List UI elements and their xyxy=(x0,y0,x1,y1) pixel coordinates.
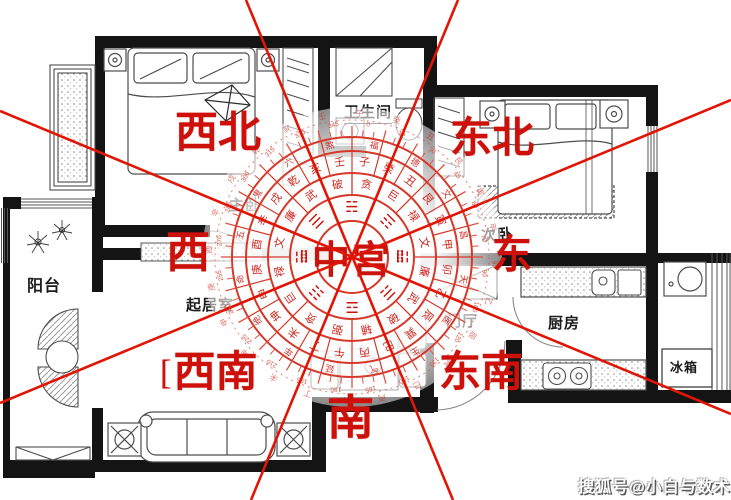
svg-text:庚: 庚 xyxy=(206,282,217,292)
sector-line-wnw-ese xyxy=(0,111,731,414)
svg-text:乙: 乙 xyxy=(483,296,494,306)
svg-text:甲: 甲 xyxy=(440,238,453,250)
svg-text:30: 30 xyxy=(427,146,437,156)
label-entry-hall: 门厅 xyxy=(446,310,478,331)
svg-text:丁: 丁 xyxy=(308,337,323,352)
svg-text:丑: 丑 xyxy=(402,173,418,189)
svg-text:巳: 巳 xyxy=(381,337,396,352)
svg-text:☳: ☳ xyxy=(393,250,410,263)
plants xyxy=(27,220,72,253)
svg-text:气: 气 xyxy=(369,363,380,376)
label-kitchen: 厨房 xyxy=(548,312,580,333)
svg-text:乾: 乾 xyxy=(285,173,302,190)
svg-text:延: 延 xyxy=(324,363,335,376)
svg-text:120: 120 xyxy=(452,330,464,343)
svg-text:乙: 乙 xyxy=(432,286,448,301)
svg-text:德: 德 xyxy=(409,155,423,169)
svg-text:300: 300 xyxy=(240,170,252,183)
svg-text:丙: 丙 xyxy=(377,392,387,402)
svg-text:破: 破 xyxy=(331,176,345,192)
svg-text:文: 文 xyxy=(417,236,433,250)
svg-text:破: 破 xyxy=(385,310,402,328)
svg-text:禄: 禄 xyxy=(405,207,423,224)
label-balcony: 阳台 xyxy=(27,272,61,296)
svg-text:辰: 辰 xyxy=(419,307,435,323)
svg-text:戌: 戌 xyxy=(268,190,285,207)
svg-text:禄: 禄 xyxy=(271,265,287,279)
svg-text:癸: 癸 xyxy=(381,160,397,177)
svg-text:巨: 巨 xyxy=(283,290,299,306)
svg-text:45: 45 xyxy=(452,170,462,180)
fengshui-floorplan: 主卧 卫生间 次卧 阳台 起居室 门厅 厨房 冰箱 ☵☶☳☴☲☷☱☰贪巨禄文廉武… xyxy=(0,0,731,500)
watermark: 搜狐号@小白与数术 xyxy=(578,473,731,497)
svg-text:煞: 煞 xyxy=(324,139,335,152)
svg-text:巨: 巨 xyxy=(385,188,401,204)
svg-text:270: 270 xyxy=(217,235,224,246)
svg-text:命: 命 xyxy=(234,274,247,285)
svg-text:坤: 坤 xyxy=(267,307,285,324)
svg-text:210: 210 xyxy=(265,357,278,369)
svg-text:辅: 辅 xyxy=(360,322,374,338)
svg-text:225: 225 xyxy=(241,332,254,345)
svg-text:武: 武 xyxy=(303,187,319,204)
svg-text:庚: 庚 xyxy=(249,263,264,276)
svg-text:寅: 寅 xyxy=(432,212,449,228)
label-east: 东 xyxy=(492,235,532,275)
svg-text:☲: ☲ xyxy=(345,298,358,315)
bracket-mark: [ xyxy=(160,354,171,392)
svg-text:未: 未 xyxy=(285,324,302,341)
seal-mark-icon: ⣿ xyxy=(395,248,405,264)
svg-text:亥: 亥 xyxy=(281,123,293,136)
label-southwest: [西南 xyxy=(160,352,257,394)
svg-text:90: 90 xyxy=(480,270,487,278)
svg-text:生: 生 xyxy=(409,345,423,359)
label-west: 西 xyxy=(166,231,210,275)
svg-text:申: 申 xyxy=(218,316,231,328)
svg-text:天: 天 xyxy=(458,274,470,285)
svg-text:未: 未 xyxy=(268,371,280,384)
label-living-room: 起居室 xyxy=(186,294,234,315)
svg-text:丙: 丙 xyxy=(358,345,370,358)
svg-text:午: 午 xyxy=(333,345,346,359)
svg-text:255: 255 xyxy=(216,269,226,282)
center-palace-text: 中宫 xyxy=(312,229,392,284)
label-master-bedroom: 主卧 xyxy=(229,194,261,215)
label-northeast: 东北 xyxy=(450,118,534,160)
svg-text:昌: 昌 xyxy=(458,229,470,240)
svg-text:癸: 癸 xyxy=(391,114,402,126)
label-fridge: 冰箱 xyxy=(670,357,698,376)
seal-mark-icon: ⣿ xyxy=(299,248,309,264)
svg-text:☵: ☵ xyxy=(345,199,358,216)
windows xyxy=(2,126,731,390)
svg-text:☶: ☶ xyxy=(376,211,398,233)
dining-set xyxy=(311,300,426,390)
svg-text:15: 15 xyxy=(397,130,406,139)
bedside-speakers xyxy=(104,49,279,71)
svg-text:六: 六 xyxy=(282,155,296,169)
svg-text:五: 五 xyxy=(235,229,247,240)
svg-text:☷: ☷ xyxy=(306,281,328,303)
svg-text:贪: 贪 xyxy=(360,176,374,192)
svg-text:165: 165 xyxy=(364,384,377,394)
svg-text:年: 年 xyxy=(282,345,296,359)
label-northwest: 西北 xyxy=(175,112,261,155)
svg-text:150: 150 xyxy=(397,373,410,385)
svg-text:丁: 丁 xyxy=(302,388,312,399)
sector-line-wsw-ene xyxy=(0,100,731,403)
svg-text:60: 60 xyxy=(469,200,479,210)
svg-text:辰: 辰 xyxy=(466,329,478,341)
svg-text:丑: 丑 xyxy=(424,131,436,143)
svg-text:廉: 廉 xyxy=(282,207,300,224)
svg-text:文: 文 xyxy=(271,236,287,250)
svg-text:武: 武 xyxy=(405,290,422,306)
svg-text:艮: 艮 xyxy=(419,190,436,207)
label-south: 南 xyxy=(327,396,374,443)
svg-text:廉: 廉 xyxy=(417,265,433,279)
svg-text:福: 福 xyxy=(369,139,380,152)
svg-text:子: 子 xyxy=(358,155,371,169)
label-southeast: 东南 xyxy=(439,352,523,394)
master-wardrobe xyxy=(283,48,313,185)
svg-text:弼: 弼 xyxy=(331,322,344,337)
svg-text:文: 文 xyxy=(440,187,454,201)
svg-text:☴: ☴ xyxy=(376,281,398,303)
svg-text:申: 申 xyxy=(256,286,272,301)
svg-text:330: 330 xyxy=(294,129,307,141)
bathroom-fixtures xyxy=(336,48,422,202)
label-bathroom: 卫生间 xyxy=(344,101,392,124)
svg-text:180: 180 xyxy=(330,385,341,392)
svg-text:壬: 壬 xyxy=(317,111,327,122)
svg-text:315: 315 xyxy=(264,146,277,159)
svg-text:卯: 卯 xyxy=(440,263,454,276)
svg-text:酉: 酉 xyxy=(251,238,264,250)
svg-text:戌: 戌 xyxy=(225,173,238,185)
svg-text:亥: 亥 xyxy=(307,160,323,177)
center-palace-label: ⣿ 中宫 ⣿ xyxy=(292,233,412,279)
balcony-furniture xyxy=(16,65,95,460)
svg-text:☱: ☱ xyxy=(294,250,311,263)
svg-text:195: 195 xyxy=(296,375,309,385)
svg-text:贪: 贪 xyxy=(302,310,319,328)
svg-text:巽: 巽 xyxy=(402,324,419,341)
svg-text:壬: 壬 xyxy=(333,155,346,169)
svg-text:345: 345 xyxy=(327,121,340,131)
sofa xyxy=(138,412,275,462)
svg-text:☰: ☰ xyxy=(306,211,328,233)
side-tables xyxy=(108,423,310,456)
svg-text:辛: 辛 xyxy=(209,207,221,218)
svg-text:巳: 巳 xyxy=(411,379,422,391)
svg-text:寅: 寅 xyxy=(474,186,487,198)
master-door-arc xyxy=(210,231,262,283)
svg-text:绝: 绝 xyxy=(250,314,264,328)
